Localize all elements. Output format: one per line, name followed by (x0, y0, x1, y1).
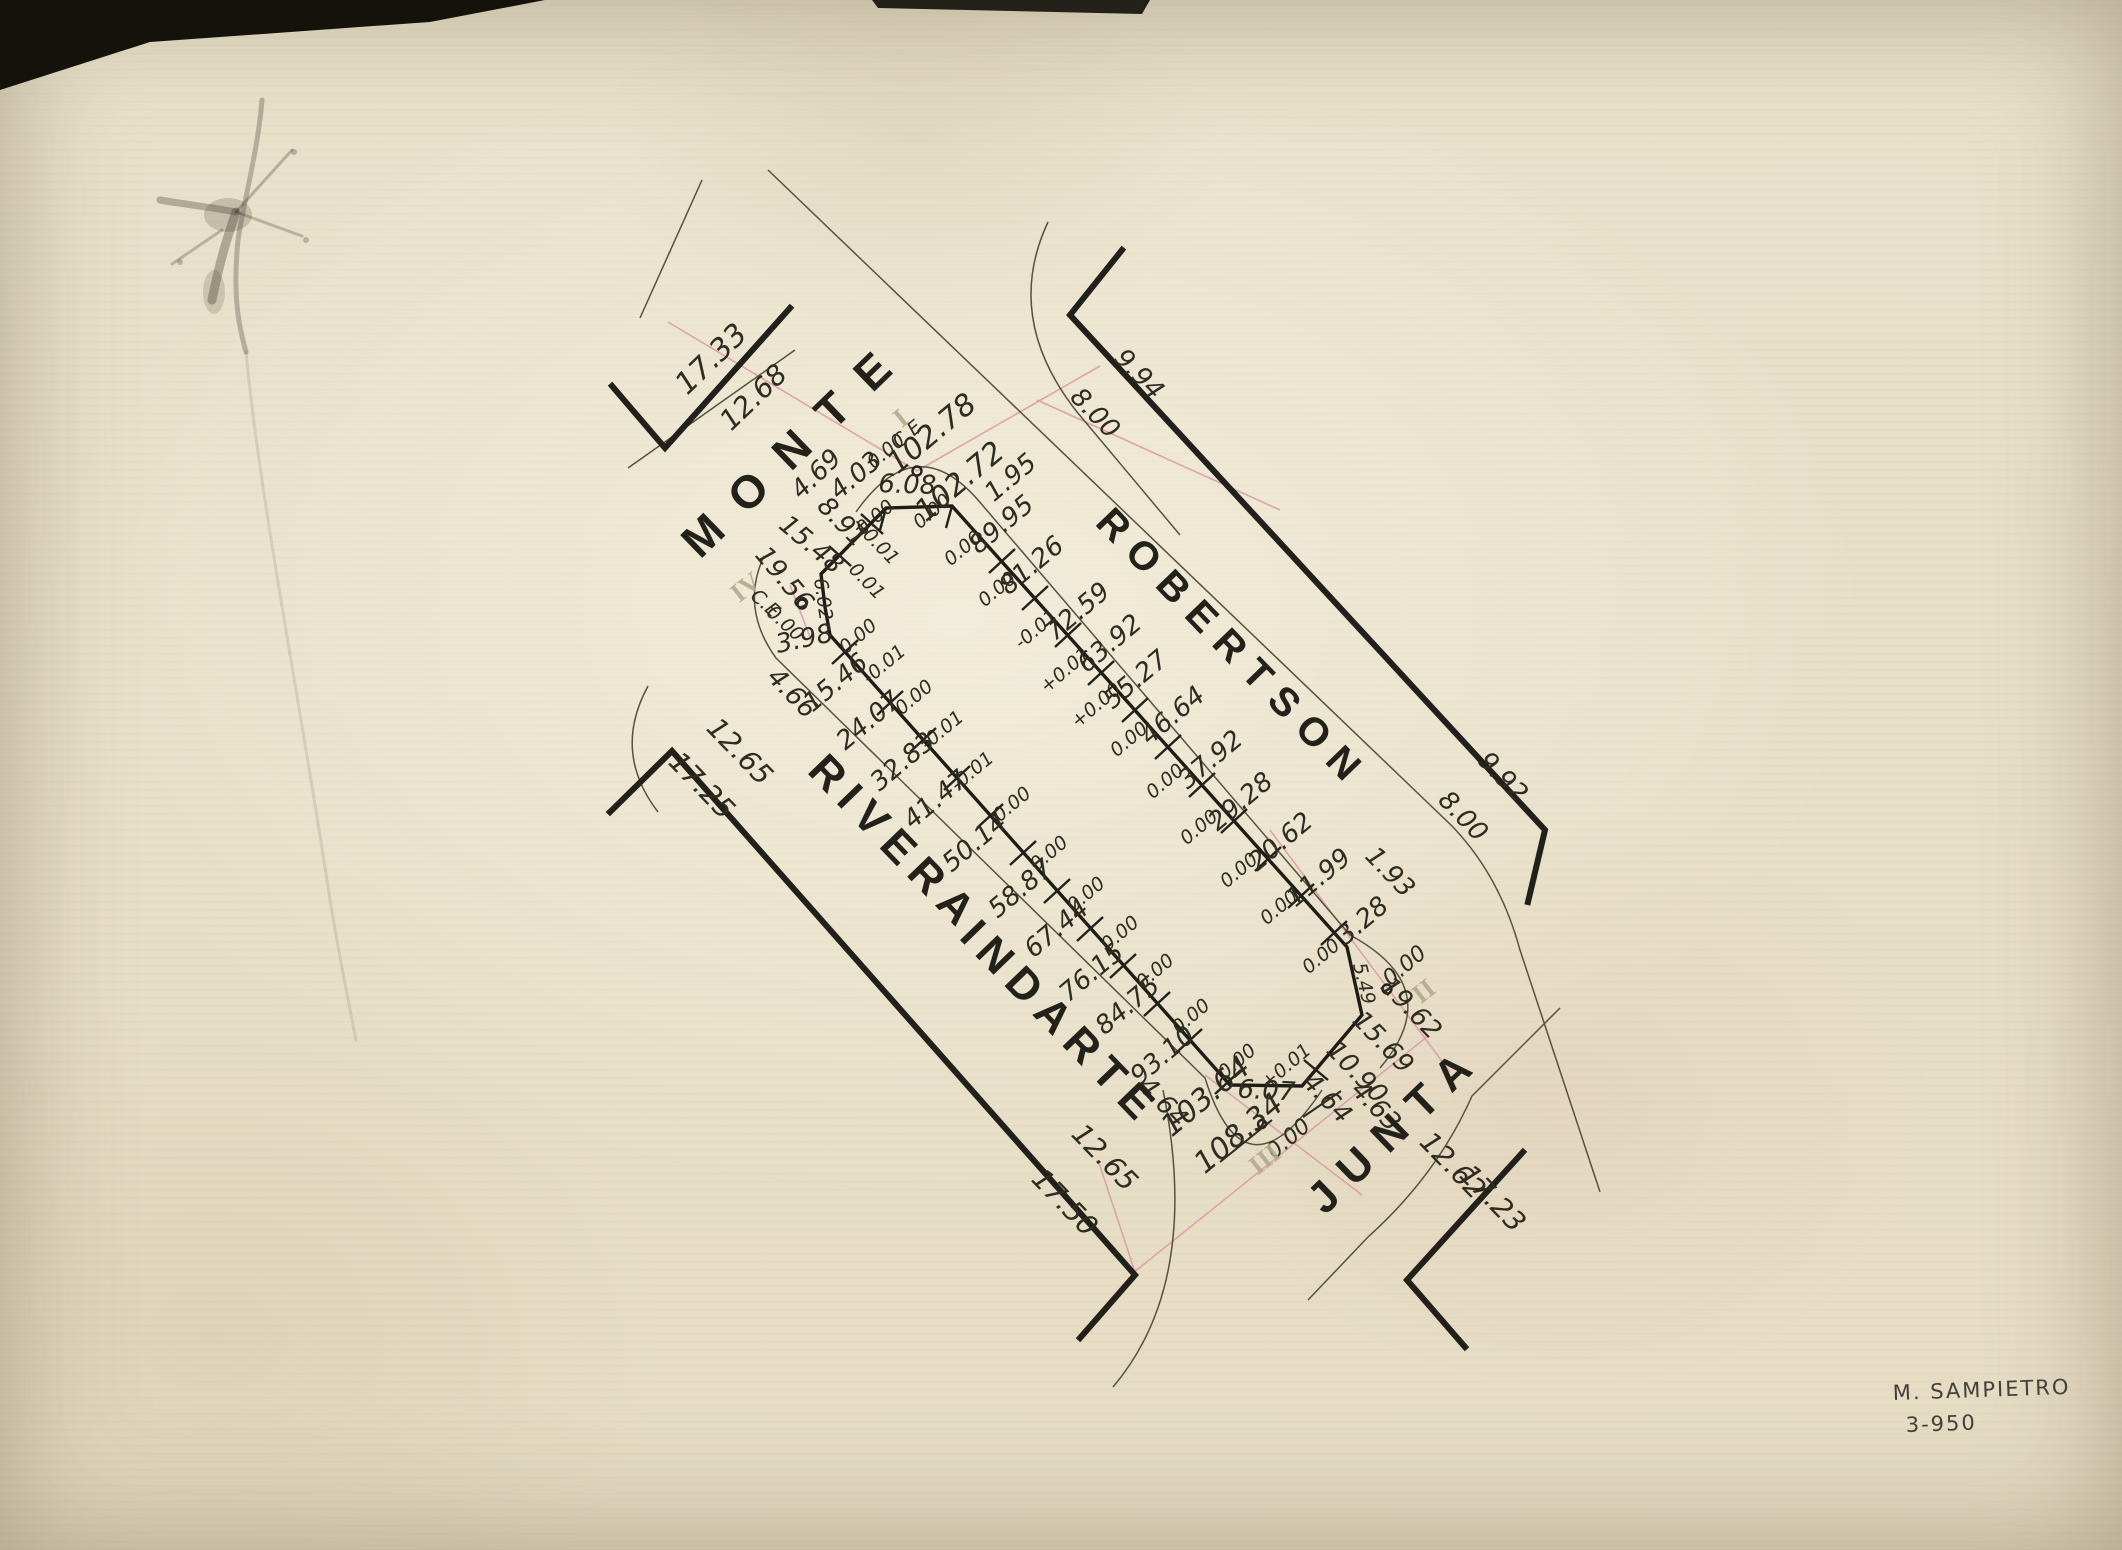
measurement-label: 1.93 (1359, 841, 1421, 903)
measurement-label: 9.92 (1472, 746, 1534, 808)
measurement-label: -0.01 (858, 640, 910, 688)
surveyor-signature: M. SAMPIETRO 3-950 (1892, 1375, 2070, 1437)
scanned-survey-plan: 17.33 12.68 4.69 9.94 8.00 1.95 9.92 8.0… (0, 0, 2122, 1550)
signature-text: 3-950 (1905, 1411, 1977, 1437)
measurement-label: -0.01 (916, 706, 968, 754)
measurement-label: 6.08 (878, 469, 937, 501)
measurement-label: 17.50 (1025, 1162, 1104, 1243)
signature-text: M. SAMPIETRO (1892, 1375, 2070, 1405)
street-property-lines (628, 170, 1600, 1387)
scan-edge-artifacts (0, 0, 1150, 90)
measurement-label: 5.49 (1348, 960, 1380, 1006)
ink-smudge (160, 100, 356, 1040)
measurement-label: 0.00 (1298, 934, 1345, 978)
measurement-label: 46.64 (1135, 680, 1211, 751)
plan-drawing: 17.33 12.68 4.69 9.94 8.00 1.95 9.92 8.0… (0, 0, 2122, 1550)
measurement-label: 6.02 (809, 577, 837, 622)
measurement-label: 9.94 (1108, 343, 1170, 405)
